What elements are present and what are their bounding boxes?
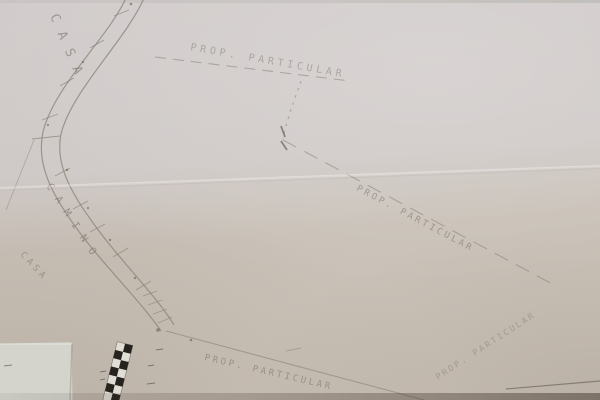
road-end-hatching (143, 291, 172, 323)
left-parcel-line (6, 140, 34, 210)
road-left-edge (41, 0, 161, 331)
photo-bottom-edge-shadow (0, 393, 600, 400)
stray-dash-bottom (286, 348, 301, 351)
boundary-bottom (166, 331, 424, 400)
label-casa-top: CASA (46, 12, 89, 87)
scale-bar (103, 342, 133, 400)
label-prop-middle: PROP. PARTICULAR (355, 184, 476, 255)
paper-patch (0, 342, 73, 400)
photo-top-edge-shadow (0, 0, 600, 3)
label-prop-top: PROP. PARTICULAR (189, 42, 346, 80)
road-camino (32, 0, 192, 341)
boundary-center-dotted (283, 81, 301, 139)
label-casa-left: CASA (18, 250, 50, 283)
survey-map-photo: CASA CAMINO CASA PROP. PARTICULAR PROP. … (0, 0, 600, 400)
boundary-right-dashed (283, 140, 558, 287)
map-drawing: CASA CAMINO CASA PROP. PARTICULAR PROP. … (0, 0, 600, 400)
label-prop-right-edge: PROP. PARTICULAR (434, 310, 538, 382)
boundary-bend-marks (281, 126, 287, 150)
label-prop-bottom: PROP. PARTICULAR (203, 353, 333, 392)
bottom-right-line (506, 381, 600, 389)
